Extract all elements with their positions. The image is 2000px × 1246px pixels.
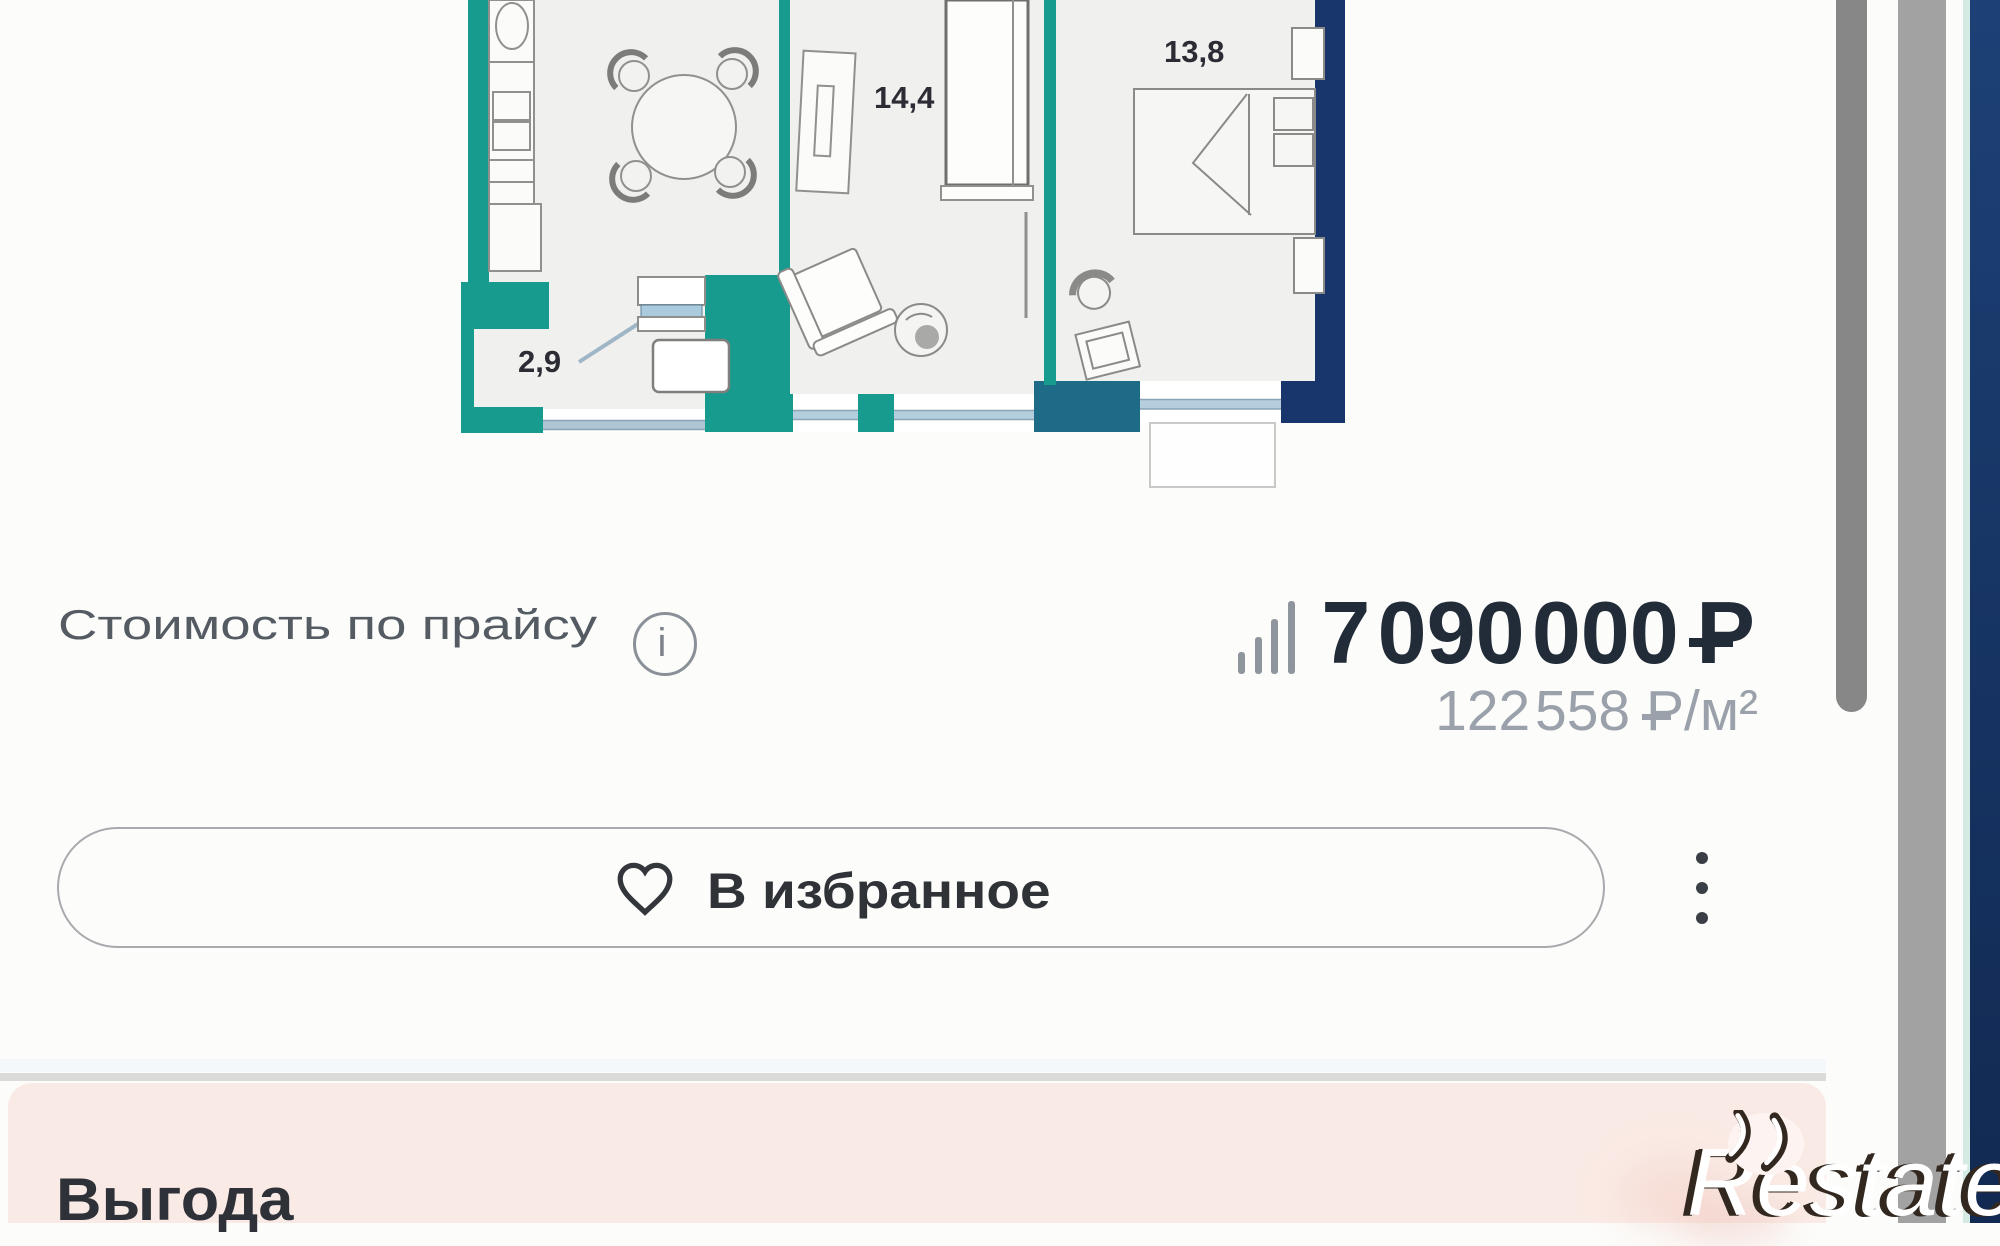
svg-text:2,9: 2,9 [518, 344, 561, 379]
svg-text:14,4: 14,4 [874, 80, 935, 115]
svg-text:13,8: 13,8 [1164, 34, 1224, 69]
